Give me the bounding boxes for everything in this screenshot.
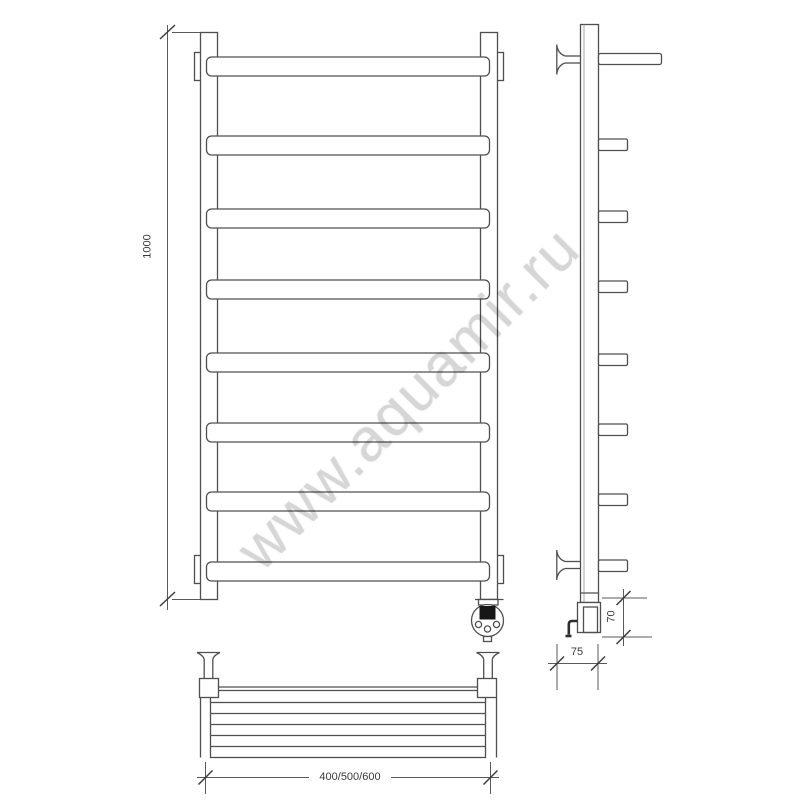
side-rung: [599, 560, 628, 572]
height-dimension-label: 1000: [141, 227, 156, 267]
side-rung: [599, 139, 628, 151]
width-dimension-label: 400/500/600: [309, 770, 391, 785]
mount-block-right: [478, 679, 497, 698]
side-rung: [599, 354, 628, 366]
side-post: [581, 25, 599, 603]
element-button-icon: [475, 621, 481, 627]
front-rung-4: [207, 280, 490, 299]
cable-outlet-icon: [569, 621, 578, 635]
front-rung-1: [207, 57, 490, 76]
side-rung: [599, 424, 628, 436]
front-rung-8: [207, 562, 490, 581]
side-rung: [599, 494, 628, 506]
mount-block-left: [200, 679, 219, 698]
wall-bracket-top-view-right: [477, 653, 500, 679]
wall-bracket-top-view-left: [197, 653, 220, 679]
element-button-icon: [484, 626, 490, 632]
front-rung-3: [207, 209, 490, 228]
side-view: [548, 25, 662, 691]
side-rung: [599, 281, 628, 293]
element-height-dimension-label: 70: [605, 597, 620, 637]
rung-stack-top-view: [211, 703, 486, 758]
front-left-post: [201, 33, 218, 600]
depth-dimension-label: 75: [557, 645, 597, 660]
height-dimension: [160, 25, 200, 610]
heating-element-side: [566, 603, 601, 637]
side-rungs: [599, 54, 662, 572]
element-display: [480, 606, 496, 620]
wall-bracket-side-top: [557, 45, 581, 75]
element-stem: [484, 637, 492, 642]
wall-bracket-side-bottom: [557, 550, 581, 580]
side-rung: [599, 211, 628, 223]
drawing-canvas: 1000 70 75 400/500/600 www.aquamir.ru: [0, 0, 800, 800]
element-button-icon: [493, 621, 499, 627]
side-rung-top: [599, 54, 662, 65]
heating-element-front: [472, 600, 504, 642]
front-rung-2: [207, 136, 490, 155]
